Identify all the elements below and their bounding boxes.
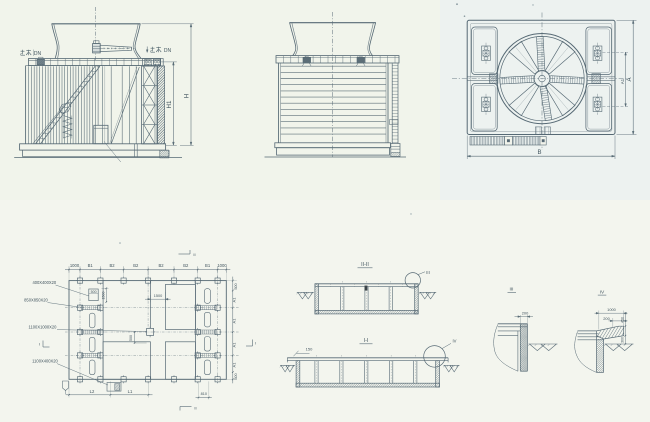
svg-text:150: 150 <box>306 346 313 351</box>
svg-text:1000: 1000 <box>607 307 616 312</box>
svg-text:B1: B1 <box>205 263 211 268</box>
svg-text:L2: L2 <box>90 389 95 394</box>
svg-text:I: I <box>39 342 40 347</box>
svg-text:200: 200 <box>522 311 529 316</box>
svg-text:500: 500 <box>91 290 97 294</box>
svg-text:I: I <box>255 341 256 346</box>
svg-text:H1: H1 <box>166 100 173 108</box>
svg-text:B: B <box>537 150 541 156</box>
svg-text:A1: A1 <box>231 318 236 324</box>
svg-text:500: 500 <box>234 373 238 379</box>
svg-text:1000: 1000 <box>217 263 227 268</box>
svg-text:H: H <box>184 94 191 98</box>
svg-text:500: 500 <box>234 283 238 289</box>
svg-text:IV: IV <box>600 289 605 295</box>
svg-text:B2: B2 <box>109 263 115 268</box>
svg-text:1000: 1000 <box>70 263 80 268</box>
svg-text:B1: B1 <box>88 263 94 268</box>
svg-text:A1: A1 <box>620 78 625 84</box>
svg-text:DN: DN <box>34 51 42 57</box>
svg-text:1500: 1500 <box>102 292 106 300</box>
svg-text:III: III <box>510 287 514 293</box>
svg-text:1500: 1500 <box>154 294 162 298</box>
svg-text:I-I: I-I <box>364 338 369 344</box>
svg-text:810: 810 <box>201 392 207 396</box>
svg-text:450: 450 <box>621 317 625 323</box>
svg-text:1100X400X20: 1100X400X20 <box>32 359 58 364</box>
svg-text:II-II: II-II <box>361 262 369 268</box>
svg-text:A1: A1 <box>231 297 236 303</box>
svg-text:300: 300 <box>621 337 625 343</box>
svg-text:B2: B2 <box>158 263 164 268</box>
svg-text:A1: A1 <box>231 342 236 348</box>
svg-text:L1: L1 <box>128 389 133 394</box>
svg-text:1100X1000X20: 1100X1000X20 <box>29 325 58 330</box>
svg-text:A: A <box>627 77 633 81</box>
svg-text:200: 200 <box>603 316 610 321</box>
svg-text:II: II <box>193 252 195 257</box>
svg-text:B2: B2 <box>133 263 139 268</box>
svg-text:III: III <box>426 270 430 275</box>
svg-text:DN: DN <box>164 48 172 54</box>
svg-text:II: II <box>194 406 196 411</box>
svg-text:IV: IV <box>453 339 457 344</box>
svg-text:400X400X20: 400X400X20 <box>32 280 56 285</box>
svg-text:B2: B2 <box>183 263 189 268</box>
svg-text:850X850X20: 850X850X20 <box>24 298 48 303</box>
svg-text:A1: A1 <box>231 362 236 368</box>
svg-text:500: 500 <box>129 335 133 341</box>
